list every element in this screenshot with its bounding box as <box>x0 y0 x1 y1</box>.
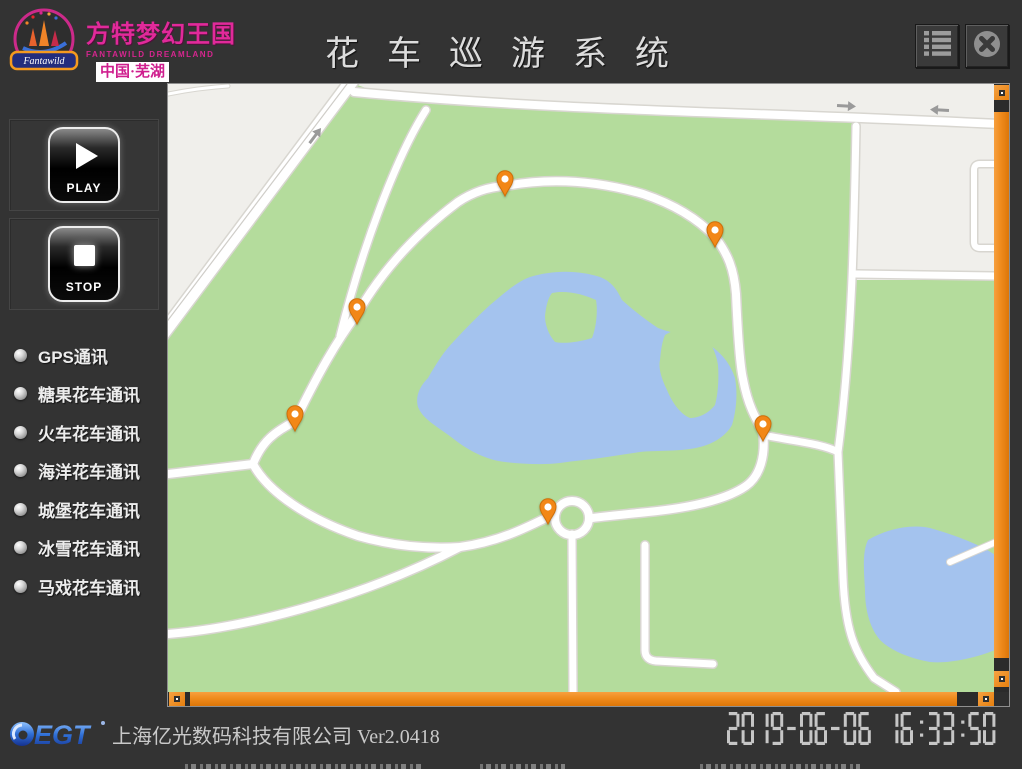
stop-icon <box>74 245 95 266</box>
status-led <box>14 426 27 439</box>
close-button[interactable] <box>965 24 1009 68</box>
egt-logo: EGT <box>8 714 108 754</box>
status-item-castle-float: 城堡花车通讯 <box>14 490 166 529</box>
status-led <box>14 503 27 516</box>
float-parade-window: Fantawild 方特梦幻王国 FANTAWILD DREAMLAND 中国·… <box>0 0 1022 769</box>
list-icon <box>924 31 951 61</box>
map-pin[interactable] <box>753 414 773 442</box>
stop-panel: STOP <box>9 218 159 310</box>
status-item-circus-float: 马戏花车通讯 <box>14 567 166 606</box>
play-panel: PLAY <box>9 119 159 211</box>
status-label: 火车花车通讯 <box>38 420 140 445</box>
map-pin[interactable] <box>347 297 367 325</box>
logo-banner-text: Fantawild <box>22 56 65 67</box>
status-label: 海洋花车通讯 <box>38 458 140 483</box>
stop-button-label: STOP <box>50 280 118 294</box>
map-pin[interactable] <box>538 497 558 525</box>
status-item-gps: GPS通讯 <box>14 336 166 375</box>
scroll-right-button[interactable] <box>978 692 994 706</box>
status-label: 城堡花车通讯 <box>38 497 140 522</box>
vertical-scrollbar[interactable] <box>994 84 1009 692</box>
scroll-left-button[interactable] <box>169 692 185 706</box>
status-label: GPS通讯 <box>38 343 108 368</box>
company-name: 上海亿光数码科技有限公司 <box>112 726 352 748</box>
status-item-train-float: 火车花车通讯 <box>14 413 166 452</box>
play-button[interactable]: PLAY <box>48 127 120 203</box>
brand-location-badge: 中国·芜湖 <box>96 62 169 82</box>
digital-clock <box>727 712 998 751</box>
page-title: 花车巡游系统 <box>180 26 842 75</box>
map-pin[interactable] <box>285 404 305 432</box>
status-item-candy-float: 糖果花车通讯 <box>14 375 166 414</box>
company-line: 上海亿光数码科技有限公司 Ver2.0418 <box>112 720 440 749</box>
clipped-bottom-text <box>480 764 565 769</box>
status-led <box>14 580 27 593</box>
comm-status-list: GPS通讯 糖果花车通讯 火车花车通讯 海洋花车通讯 城堡花车通讯 冰雪花车通讯… <box>14 336 166 606</box>
map-pin[interactable] <box>495 169 515 197</box>
vertical-scroll-thumb[interactable] <box>994 112 1009 658</box>
fantawild-logo: Fantawild <box>8 6 80 78</box>
stop-button[interactable]: STOP <box>48 226 120 302</box>
map-frame <box>167 83 1010 707</box>
close-icon <box>972 29 1002 64</box>
play-icon <box>76 143 98 169</box>
play-button-label: PLAY <box>50 181 118 195</box>
status-label: 糖果花车通讯 <box>38 381 140 406</box>
park-map[interactable] <box>168 84 994 692</box>
clipped-bottom-text <box>700 764 860 769</box>
status-led <box>14 541 27 554</box>
status-led <box>14 464 27 477</box>
map-pin[interactable] <box>705 220 725 248</box>
version-label: Ver2.0418 <box>357 726 440 748</box>
status-led <box>14 349 27 362</box>
park-map-svg <box>168 84 994 692</box>
scroll-up-button[interactable] <box>994 85 1009 100</box>
clipped-bottom-text <box>185 764 425 769</box>
egt-logo-text: EGT <box>34 720 92 750</box>
horizontal-scrollbar[interactable] <box>168 692 994 706</box>
horizontal-scroll-thumb[interactable] <box>190 692 957 706</box>
scroll-down-button[interactable] <box>994 671 1009 687</box>
status-label: 马戏花车通讯 <box>38 574 140 599</box>
status-label: 冰雪花车通讯 <box>38 535 140 560</box>
status-item-snow-float: 冰雪花车通讯 <box>14 529 166 568</box>
status-led <box>14 387 27 400</box>
menu-button[interactable] <box>915 24 959 68</box>
status-item-ocean-float: 海洋花车通讯 <box>14 452 166 491</box>
header-bar: Fantawild 方特梦幻王国 FANTAWILD DREAMLAND 中国·… <box>0 0 1022 84</box>
